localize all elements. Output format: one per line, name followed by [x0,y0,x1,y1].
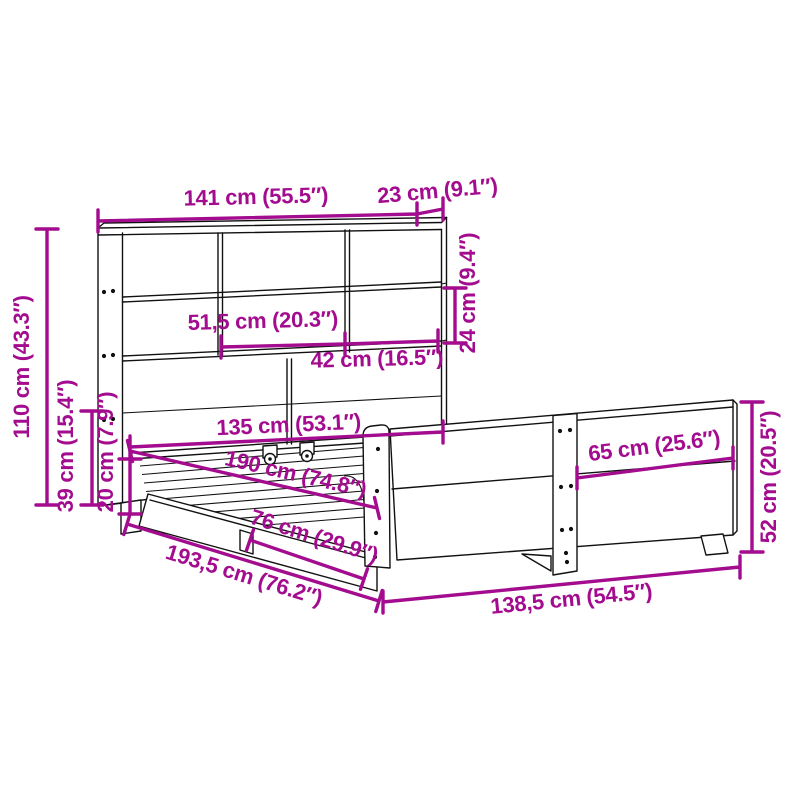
dim-headboard-height: 110 cm (43.3″) [9,229,58,505]
dim-footboard-height: 52 cm (20.5″) [741,402,781,552]
dim-label: 23 cm (9.1″) [376,173,498,208]
dim-label: 20 cm (7.9″) [93,392,118,513]
dim-label: 39 cm (15.4″) [53,380,78,513]
dim-label: 52 cm (20.5″) [756,411,781,544]
dim-label: 110 cm (43.3″) [9,295,34,438]
footboard-foot [701,534,728,555]
footboard-stud [553,414,577,576]
dimension-annotations: 141 cm (55.5″) 23 cm (9.1″) 110 cm (43.3… [9,173,781,619]
dim-compartment-height: 24 cm (9.4″) [444,233,480,354]
dimension-diagram: 141 cm (55.5″) 23 cm (9.1″) 110 cm (43.3… [0,0,800,800]
footboard-brace [522,554,551,571]
dim-label: 24 cm (9.4″) [455,233,480,354]
dim-label: 141 cm (55.5″) [183,182,328,210]
dim-headboard-width: 141 cm (55.5″) [98,182,417,232]
dim-side-compartment-width: 42 cm (16.5″) [310,330,443,373]
dim-label: 190 cm (74.8″) [222,445,368,502]
dim-label: 51,5 cm (20.3″) [187,306,338,335]
diagram-canvas: 141 cm (55.5″) 23 cm (9.1″) 110 cm (43.3… [0,0,800,800]
bed-drawing [98,218,737,592]
dim-label: 42 cm (16.5″) [310,344,443,372]
